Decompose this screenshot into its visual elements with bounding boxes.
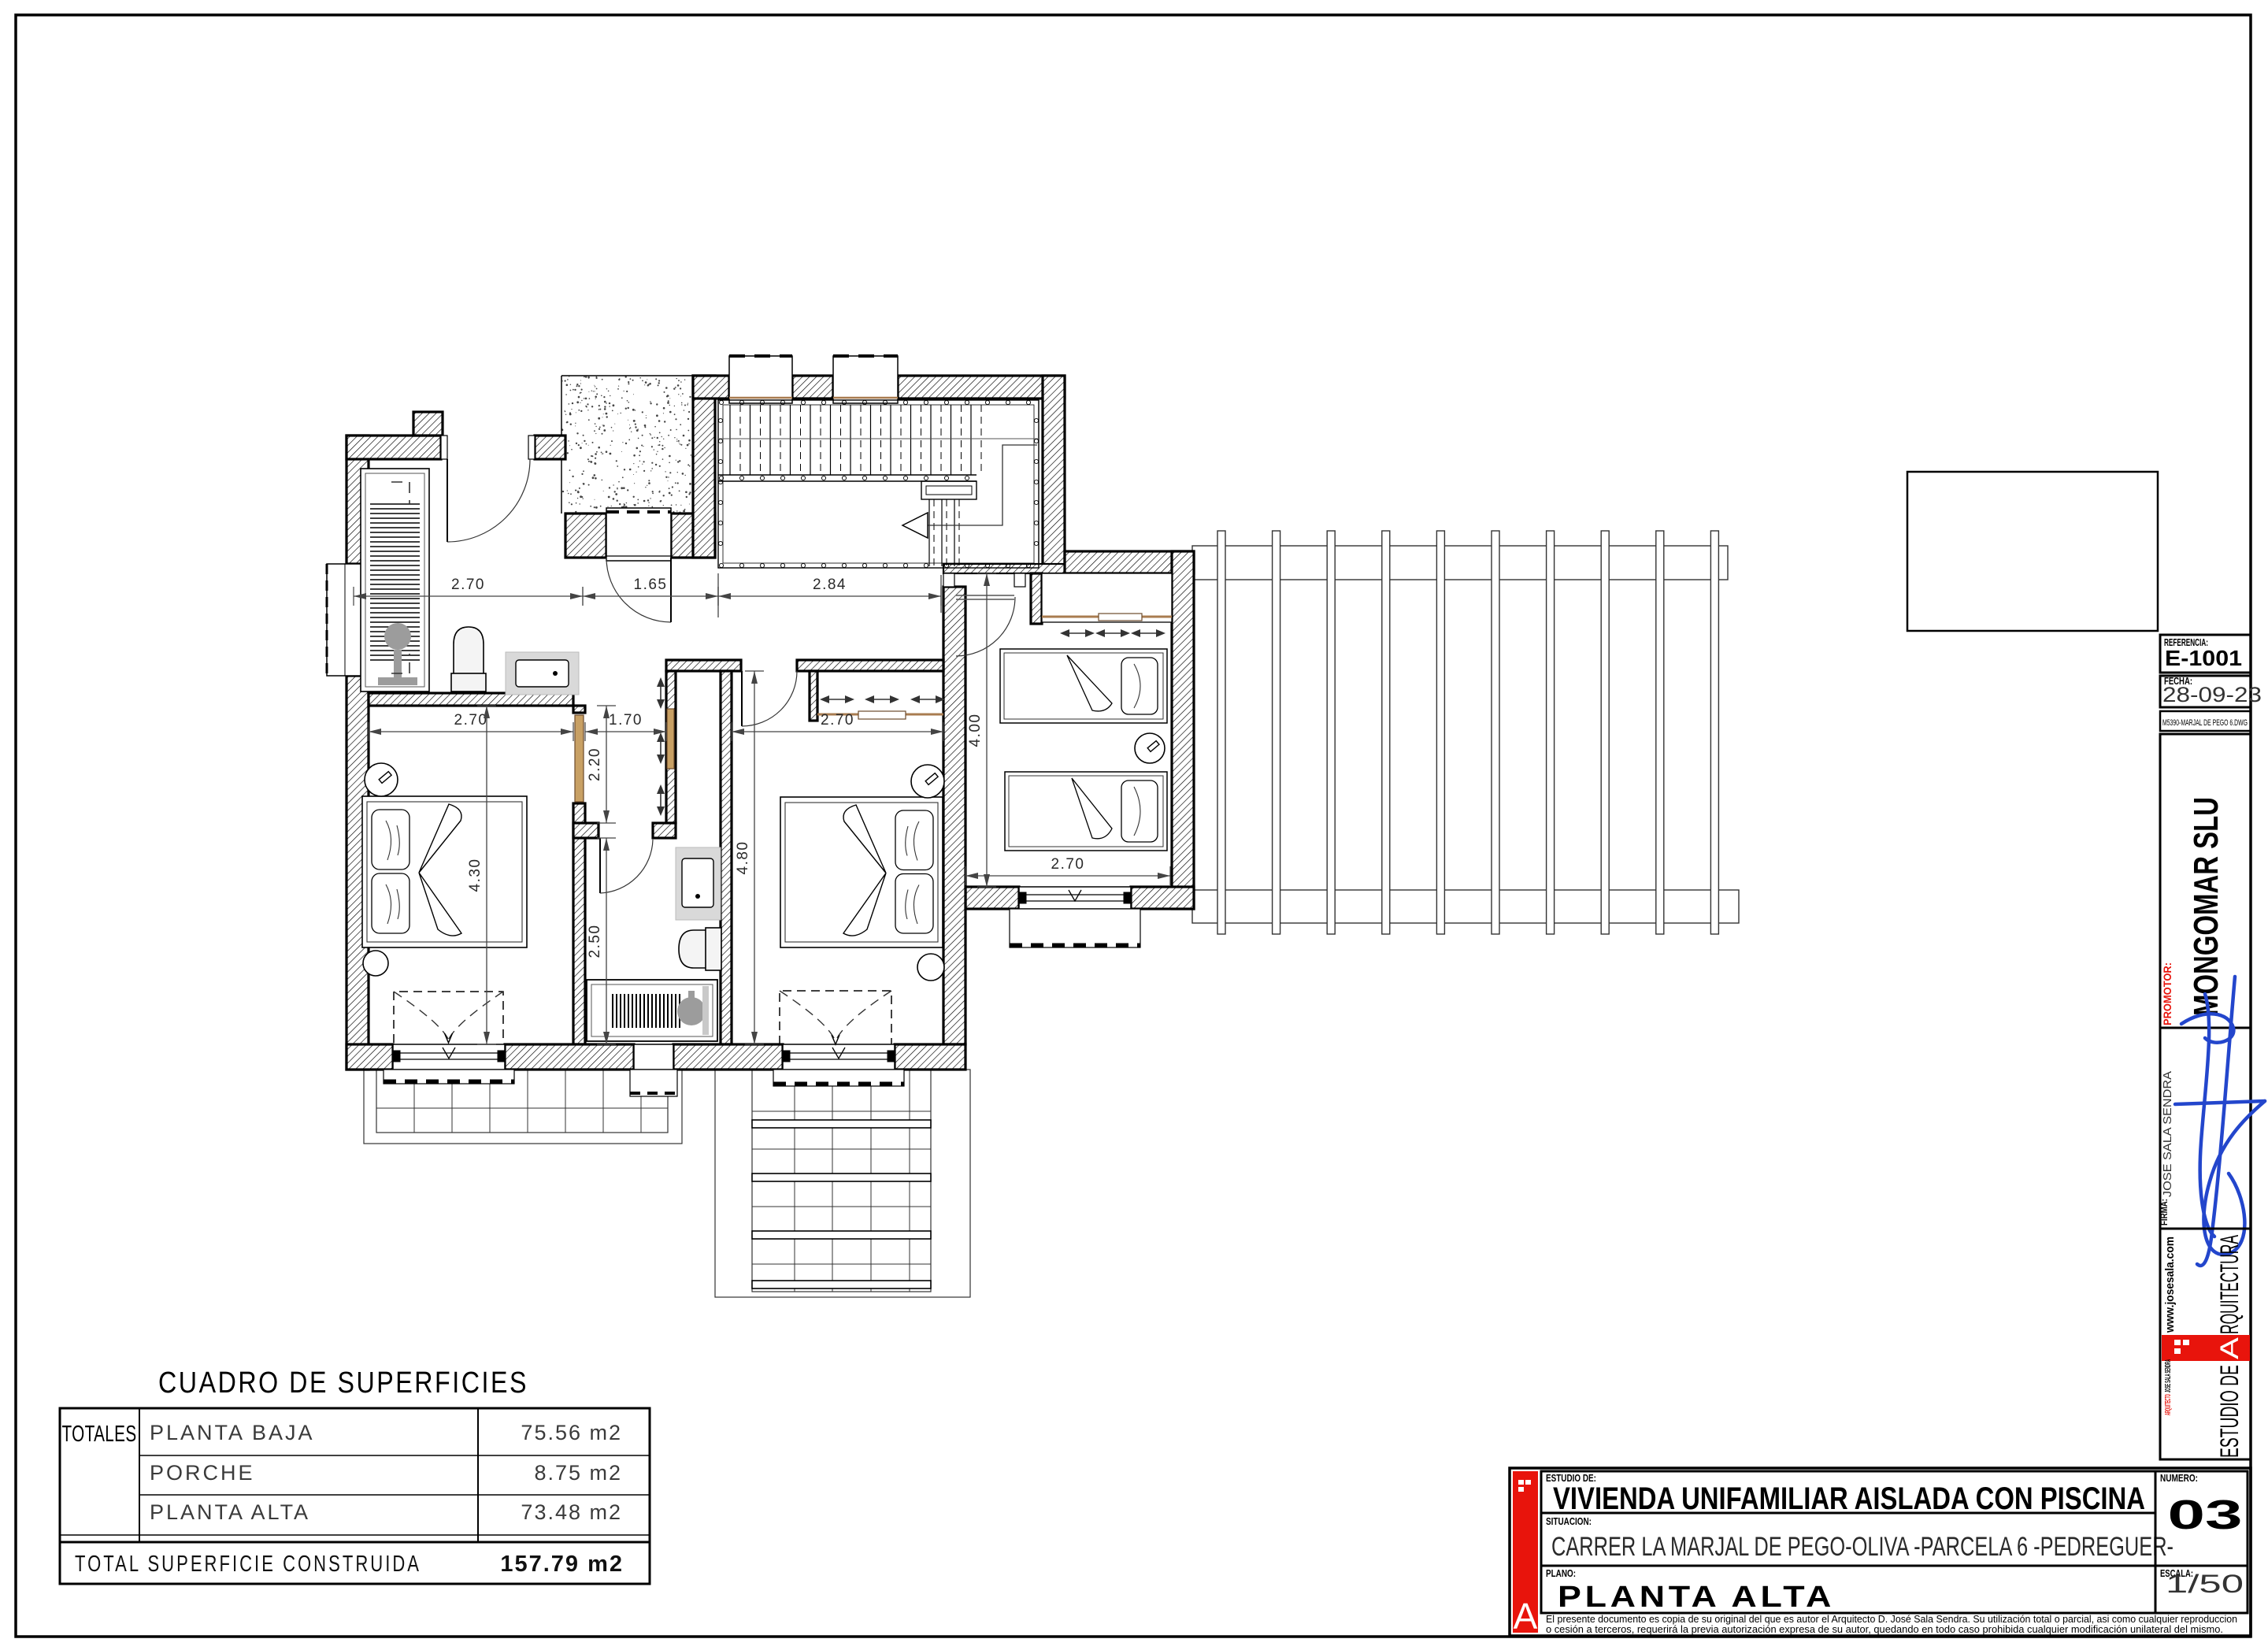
- svg-text:PLANTA ALTA: PLANTA ALTA: [1558, 1581, 1835, 1614]
- svg-text:1.65: 1.65: [634, 577, 668, 593]
- svg-text:2.70: 2.70: [1051, 856, 1085, 873]
- svg-text:El presente documento es copia: El presente documento es copia de su ori…: [1546, 1614, 2237, 1625]
- svg-text:ARQUITECTO: ARQUITECTO: [2164, 1394, 2173, 1415]
- svg-text:NUMERO:: NUMERO:: [2160, 1472, 2198, 1484]
- svg-text:PLANTA ALTA: PLANTA ALTA: [150, 1500, 310, 1524]
- svg-text:2.20: 2.20: [587, 747, 603, 781]
- svg-text:MONGOMAR SLU: MONGOMAR SLU: [2187, 797, 2225, 1016]
- svg-text:A: A: [1514, 1596, 1538, 1637]
- svg-text:2.70: 2.70: [821, 712, 854, 729]
- svg-text:2.50: 2.50: [587, 925, 603, 958]
- svg-text:4.00: 4.00: [967, 714, 984, 747]
- svg-text:73.48 m2: 73.48 m2: [521, 1500, 622, 1524]
- svg-text:1.70: 1.70: [609, 712, 643, 729]
- svg-text:JOSE SALA SENDRA: JOSE SALA SENDRA: [2161, 1071, 2174, 1197]
- svg-text:FIRMA:: FIRMA:: [2159, 1199, 2170, 1225]
- svg-text:www.josesala.com: www.josesala.com: [2163, 1237, 2177, 1333]
- svg-text:PLANO:: PLANO:: [1546, 1567, 1576, 1579]
- svg-text:PROMOTOR:: PROMOTOR:: [2161, 962, 2173, 1025]
- svg-text:PORCHE: PORCHE: [150, 1461, 255, 1485]
- svg-text:ESTUDIO DE: ESTUDIO DE: [2215, 1365, 2244, 1458]
- svg-text:CUADRO DE SUPERFICIES: CUADRO DE SUPERFICIES: [158, 1366, 528, 1400]
- svg-text:A: A: [2215, 1337, 2244, 1359]
- svg-text:2.70: 2.70: [451, 577, 485, 593]
- svg-text:JOSE SALA SENDRA: JOSE SALA SENDRA: [2164, 1359, 2173, 1392]
- svg-text:M5390-MARJAL DE PEGO 6.DWG: M5390-MARJAL DE PEGO 6.DWG: [2162, 718, 2248, 728]
- svg-text:2.70: 2.70: [454, 712, 488, 729]
- svg-text:CARRER LA MARJAL DE PEGO-OLIVA: CARRER LA MARJAL DE PEGO-OLIVA -PARCELA …: [1551, 1532, 2173, 1562]
- svg-text:o cesión a terceros, requerirá: o cesión a terceros, requerirá la previa…: [1546, 1624, 2223, 1635]
- svg-text:E-1001: E-1001: [2165, 646, 2242, 670]
- svg-text:03: 03: [2168, 1492, 2243, 1538]
- svg-text:2.84: 2.84: [813, 577, 847, 593]
- svg-text:TOTALES: TOTALES: [62, 1422, 137, 1447]
- svg-text:VIVIENDA UNIFAMILIAR AISLADA C: VIVIENDA UNIFAMILIAR AISLADA CON PISCINA: [1553, 1481, 2145, 1516]
- svg-text:157.79 m2: 157.79 m2: [500, 1552, 624, 1577]
- svg-text:RQUITECTURA: RQUITECTURA: [2215, 1235, 2244, 1334]
- svg-text:75.56 m2: 75.56 m2: [521, 1421, 622, 1444]
- svg-text:SITUACION:: SITUACION:: [1546, 1515, 1592, 1527]
- svg-text:8.75 m2: 8.75 m2: [534, 1461, 622, 1485]
- svg-text:4.80: 4.80: [735, 841, 751, 875]
- svg-text:PLANTA BAJA: PLANTA BAJA: [150, 1421, 315, 1444]
- svg-text:TOTAL SUPERFICIE CONSTRUIDA: TOTAL SUPERFICIE CONSTRUIDA: [75, 1552, 421, 1577]
- svg-text:1/50: 1/50: [2166, 1570, 2244, 1598]
- svg-text:4.30: 4.30: [467, 858, 484, 892]
- svg-text:28-09-23: 28-09-23: [2162, 683, 2262, 706]
